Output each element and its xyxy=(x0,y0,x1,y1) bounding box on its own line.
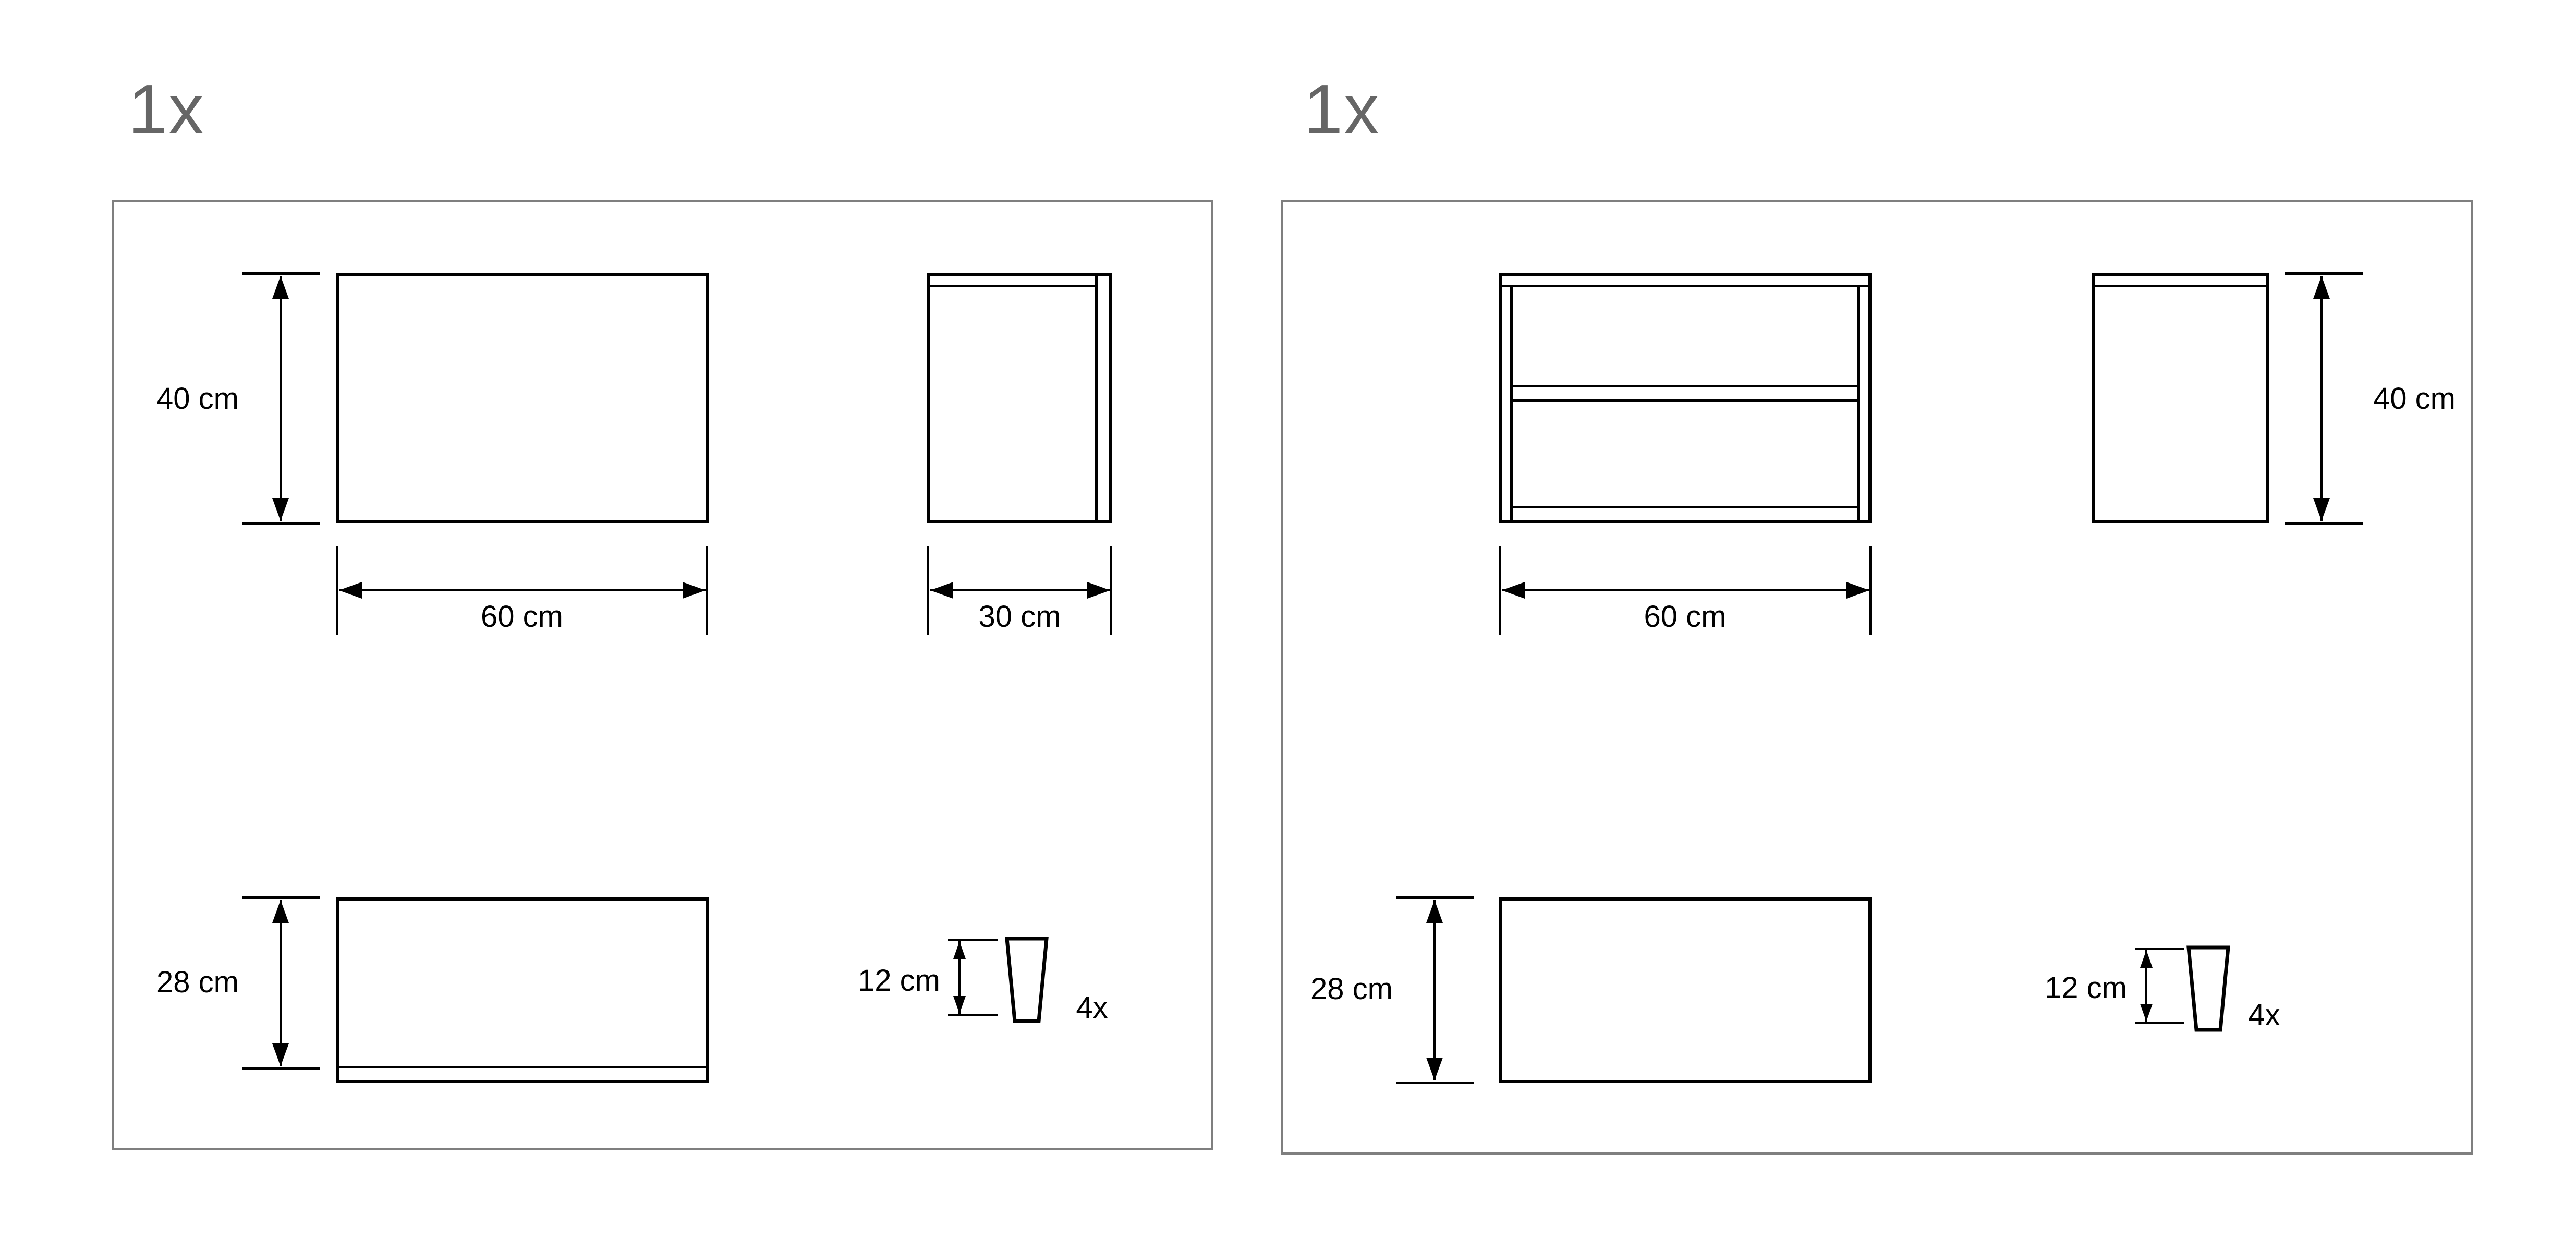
dim-label-height-40: 40 cm xyxy=(129,383,239,415)
dim-label-height-28: 28 cm xyxy=(1283,973,1393,1005)
arrowhead-right-icon xyxy=(1846,582,1869,599)
left-side-wall-line xyxy=(1510,287,1513,520)
dim-tick-bottom xyxy=(2135,1022,2184,1024)
side-top-edge-line xyxy=(2095,285,2266,287)
dim-tick-bottom xyxy=(242,522,320,525)
side-panel-view xyxy=(927,273,1112,523)
dim-tick-top xyxy=(1396,896,1474,899)
dim-tick-top xyxy=(2285,272,2363,275)
arrowhead-up-icon xyxy=(953,941,966,959)
leg-icon xyxy=(2184,945,2232,1032)
side-top-edge-line xyxy=(930,285,1095,287)
arrowhead-down-icon xyxy=(953,996,966,1014)
arrowhead-down-icon xyxy=(2140,1004,2153,1022)
arrowhead-up-icon xyxy=(2313,276,2330,299)
dim-line-vertical xyxy=(280,276,282,521)
dim-line-horizontal xyxy=(1502,589,1869,591)
shelf-bottom-line xyxy=(1513,399,1857,402)
dim-line-horizontal xyxy=(930,589,1110,591)
dim-ext-right xyxy=(706,546,708,635)
side-back-edge-line xyxy=(1095,276,1098,520)
leg-count-label: 4x xyxy=(1055,992,1128,1024)
dim-label-width-60: 60 cm xyxy=(444,601,600,633)
arrowhead-up-icon xyxy=(272,900,289,923)
assembled-front-view xyxy=(1499,273,1872,523)
arrowhead-right-icon xyxy=(1087,582,1110,599)
dim-tick-top xyxy=(242,896,320,899)
plate-panel-view xyxy=(1499,897,1872,1083)
front-panel-view xyxy=(336,273,709,523)
dim-ext-left xyxy=(336,546,338,635)
arrowhead-right-icon xyxy=(683,582,706,599)
arrowhead-left-icon xyxy=(930,582,953,599)
arrowhead-down-icon xyxy=(272,498,289,521)
arrowhead-left-icon xyxy=(1502,582,1525,599)
dim-line-vertical xyxy=(2320,276,2323,521)
dim-line-horizontal xyxy=(339,589,706,591)
dim-tick-bottom xyxy=(948,1014,998,1016)
dim-line-vertical xyxy=(1433,900,1436,1080)
quantity-label-left: 1x xyxy=(128,73,205,146)
dim-tick-bottom xyxy=(242,1067,320,1070)
dim-label-height-12: 12 cm xyxy=(2023,972,2127,1004)
leg-icon xyxy=(1003,937,1051,1023)
arrowhead-up-icon xyxy=(272,276,289,299)
arrowhead-down-icon xyxy=(2313,498,2330,521)
arrowhead-up-icon xyxy=(2140,950,2153,968)
assembled-side-view xyxy=(2092,273,2269,523)
dim-label-height-40: 40 cm xyxy=(2373,383,2498,415)
shelf-top-line xyxy=(1513,385,1857,387)
dim-label-width-60: 60 cm xyxy=(1499,601,1872,633)
right-side-wall-line xyxy=(1857,287,1860,520)
arrowhead-down-icon xyxy=(1426,1058,1443,1080)
bottom-panel-line xyxy=(1513,506,1857,508)
dim-label-width-30: 30 cm xyxy=(927,601,1112,633)
dim-label-height-12: 12 cm xyxy=(836,965,940,997)
top-panel-line xyxy=(1502,285,1868,287)
dim-tick-bottom xyxy=(2285,522,2363,525)
drawing-canvas: 1x 40 cm 60 cm 30 cm xyxy=(0,0,2576,1239)
leg-count-label: 4x xyxy=(2228,999,2301,1031)
parts-sheet-left: 40 cm 60 cm 30 cm 28 cm xyxy=(112,200,1213,1150)
arrowhead-down-icon xyxy=(272,1043,289,1066)
dim-label-height-28: 28 cm xyxy=(129,966,239,999)
arrowhead-left-icon xyxy=(339,582,362,599)
dim-line-vertical xyxy=(280,900,282,1066)
plate-panel-view xyxy=(336,897,709,1083)
dim-tick-bottom xyxy=(1396,1082,1474,1084)
dim-tick-top xyxy=(242,272,320,275)
plate-bottom-edge-line xyxy=(339,1066,706,1068)
arrowhead-up-icon xyxy=(1426,900,1443,923)
quantity-label-right: 1x xyxy=(1304,73,1380,146)
parts-sheet-right: 60 cm 40 cm 28 cm 12 cm 4x xyxy=(1281,200,2473,1155)
